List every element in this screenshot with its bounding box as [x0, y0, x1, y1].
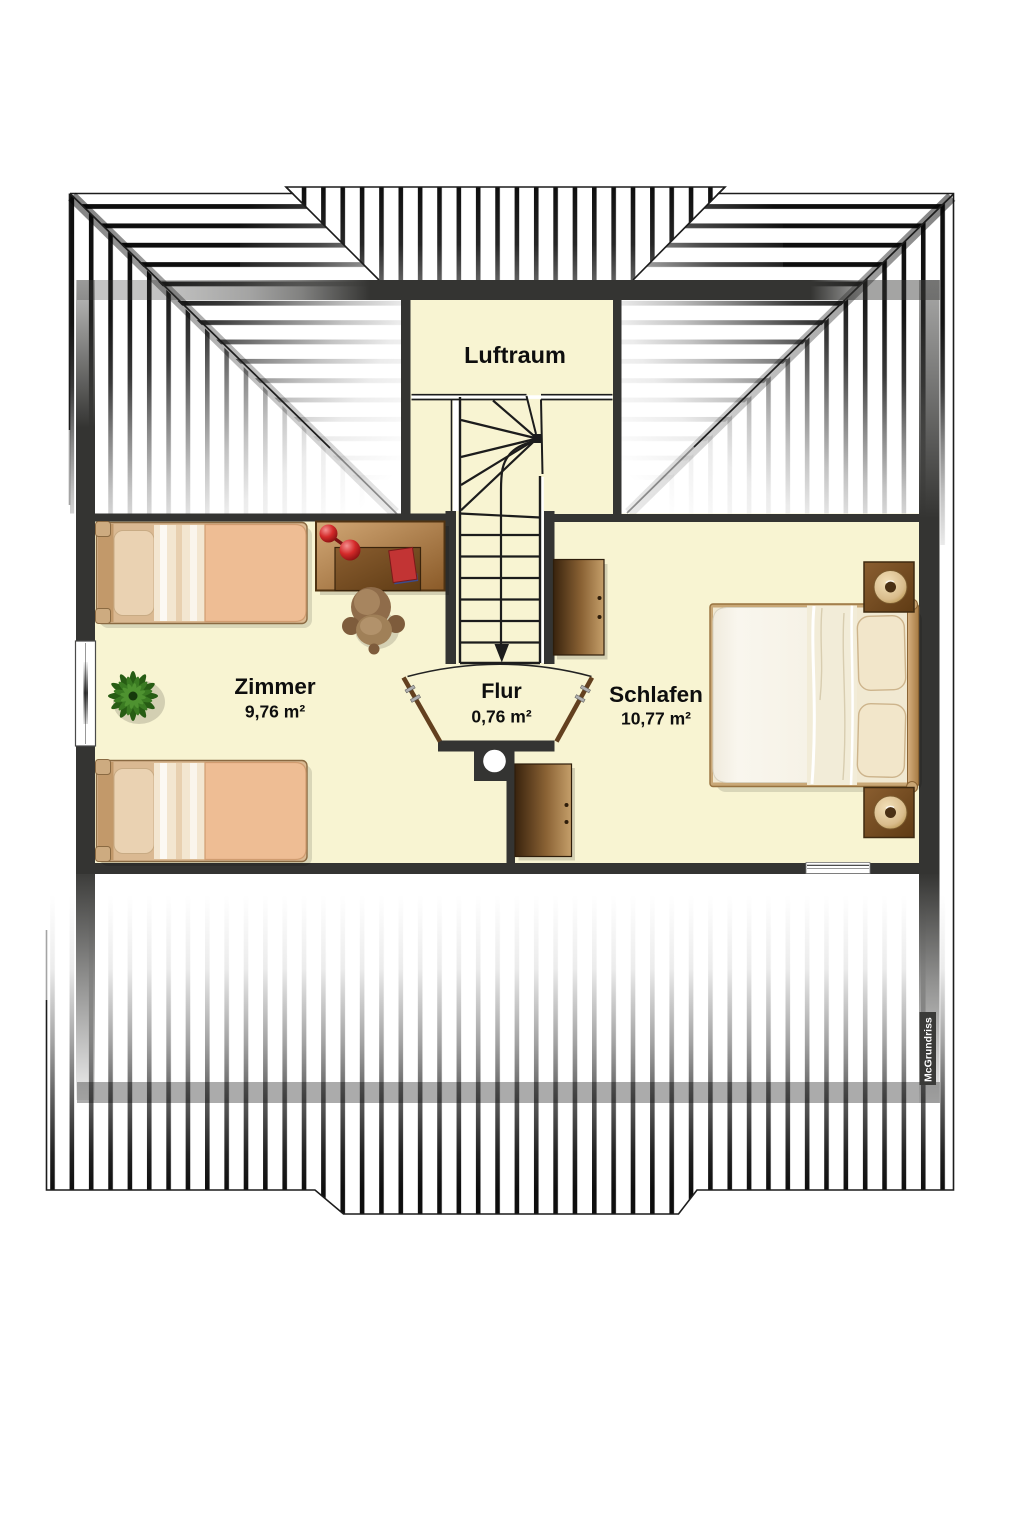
svg-text:10,77 m²: 10,77 m² — [621, 709, 691, 729]
svg-text:Schlafen: Schlafen — [609, 682, 703, 707]
svg-text:9,76 m²: 9,76 m² — [245, 702, 305, 722]
svg-text:McGrundriss: McGrundriss — [923, 1017, 935, 1082]
svg-text:Luftraum: Luftraum — [464, 342, 566, 368]
svg-text:Zimmer: Zimmer — [234, 674, 316, 699]
svg-text:0,76 m²: 0,76 m² — [471, 707, 531, 727]
svg-text:Flur: Flur — [481, 679, 522, 703]
